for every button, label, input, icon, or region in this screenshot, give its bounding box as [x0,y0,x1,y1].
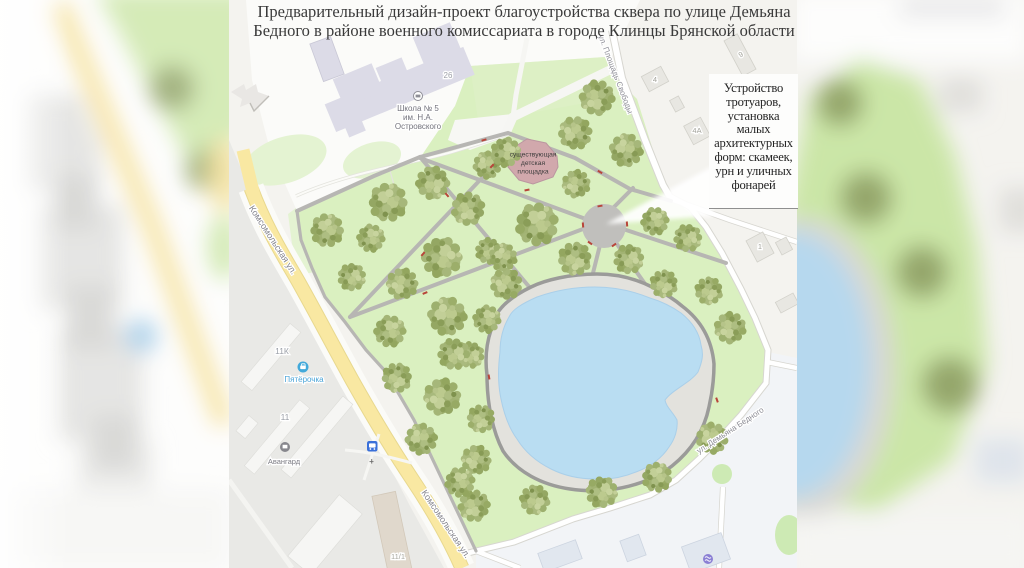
svg-text:Пятёрочка: Пятёрочка [284,375,324,384]
svg-text:1: 1 [758,242,762,251]
svg-text:11/1: 11/1 [391,552,405,561]
svg-text:им. Н.А.: им. Н.А. [403,113,433,122]
svg-text:существующая: существующая [510,152,557,159]
svg-text:26: 26 [444,71,453,80]
svg-text:11: 11 [281,412,290,422]
svg-text:4А: 4А [692,126,701,135]
svg-text:детская: детская [521,160,546,167]
svg-text:Авангард: Авангард [268,457,301,466]
svg-text:Школа № 5: Школа № 5 [397,104,439,113]
svg-text:площадка: площадка [517,169,549,176]
svg-text:11К: 11К [275,346,289,356]
svg-text:4: 4 [653,75,657,84]
svg-text:Островского: Островского [395,122,442,131]
